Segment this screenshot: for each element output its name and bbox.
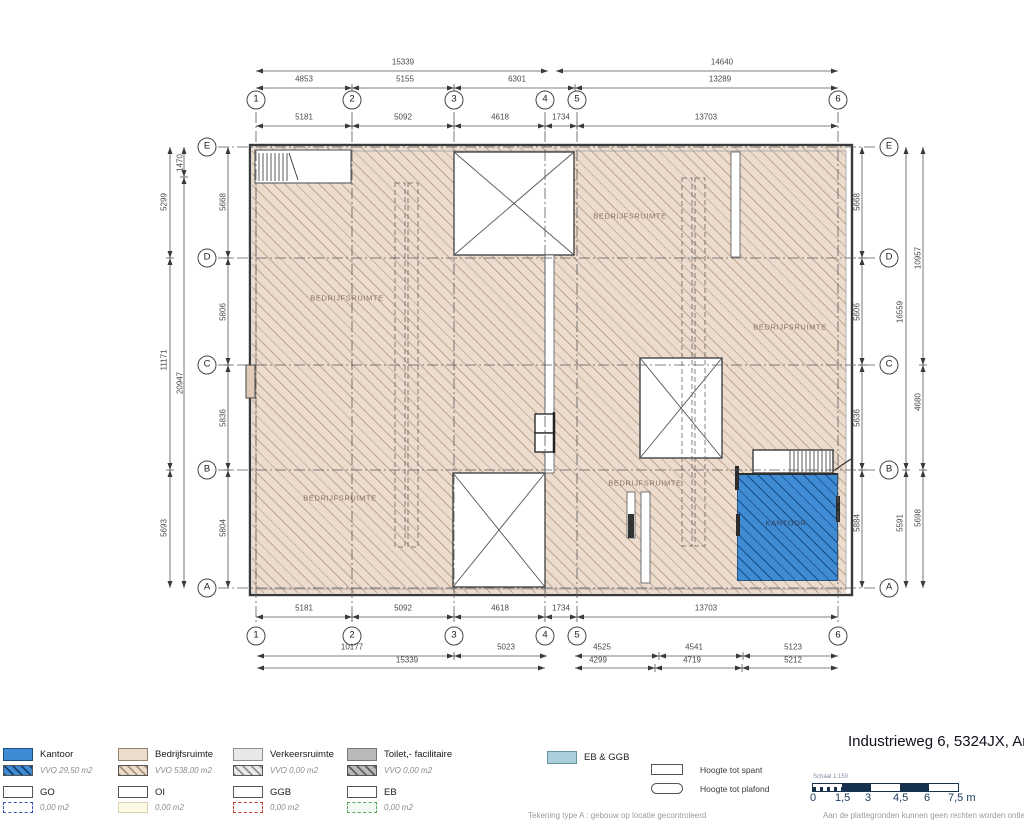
vide-bottom	[453, 473, 545, 587]
interior-wall	[731, 152, 740, 257]
floorplan-page: 123456123456EDCBAEDCBA 15339146404853515…	[0, 0, 1024, 826]
door-leaf	[628, 514, 634, 538]
facade-door	[246, 365, 255, 398]
interior-wall	[641, 492, 650, 583]
vide-top	[454, 152, 574, 255]
double-door	[535, 412, 554, 453]
stair-kantoor	[753, 450, 851, 473]
plan-drawing	[0, 0, 1024, 826]
stairwell-top-left	[255, 150, 351, 183]
door-leaf	[736, 514, 740, 536]
interior-wall	[545, 255, 554, 415]
vide-center	[640, 358, 722, 458]
